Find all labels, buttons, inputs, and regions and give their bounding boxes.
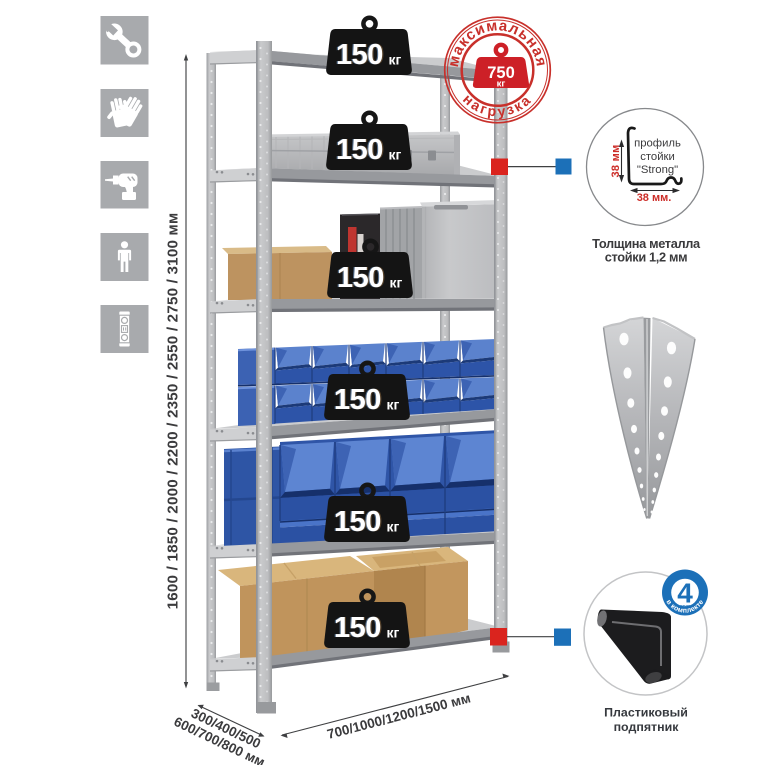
svg-text:штуки: штуки <box>679 604 692 609</box>
svg-text:150: 150 <box>334 506 381 538</box>
svg-text:подпятник: подпятник <box>614 720 680 734</box>
svg-text:1600 / 1850 / 2000 / 2200 / 23: 1600 / 1850 / 2000 / 2200 / 2350 / 2550 … <box>165 213 182 610</box>
svg-text:150: 150 <box>337 262 384 294</box>
svg-text:150: 150 <box>336 39 383 71</box>
svg-text:кг: кг <box>497 79 506 90</box>
svg-text:150: 150 <box>336 134 383 166</box>
svg-text:стойки 1,2 мм: стойки 1,2 мм <box>605 250 687 265</box>
svg-text:стойки: стойки <box>640 151 675 163</box>
svg-text:700/1000/1200/1500 мм: 700/1000/1200/1500 мм <box>326 690 473 741</box>
svg-text:38 мм.: 38 мм. <box>637 192 672 204</box>
svg-text:кг: кг <box>387 397 400 413</box>
svg-text:38 мм: 38 мм <box>610 144 622 177</box>
svg-text:Пластиковый: Пластиковый <box>604 705 688 719</box>
svg-text:150: 150 <box>334 612 381 644</box>
svg-text:профиль: профиль <box>634 138 681 150</box>
svg-text:кг: кг <box>389 147 402 163</box>
svg-text:кг: кг <box>387 519 400 535</box>
svg-text:150: 150 <box>334 384 381 416</box>
svg-text:"Strong": "Strong" <box>637 164 678 176</box>
svg-text:Толщина металла: Толщина металла <box>592 236 701 251</box>
svg-text:кг: кг <box>387 625 400 641</box>
svg-text:кг: кг <box>390 275 403 291</box>
svg-text:кг: кг <box>389 52 402 68</box>
